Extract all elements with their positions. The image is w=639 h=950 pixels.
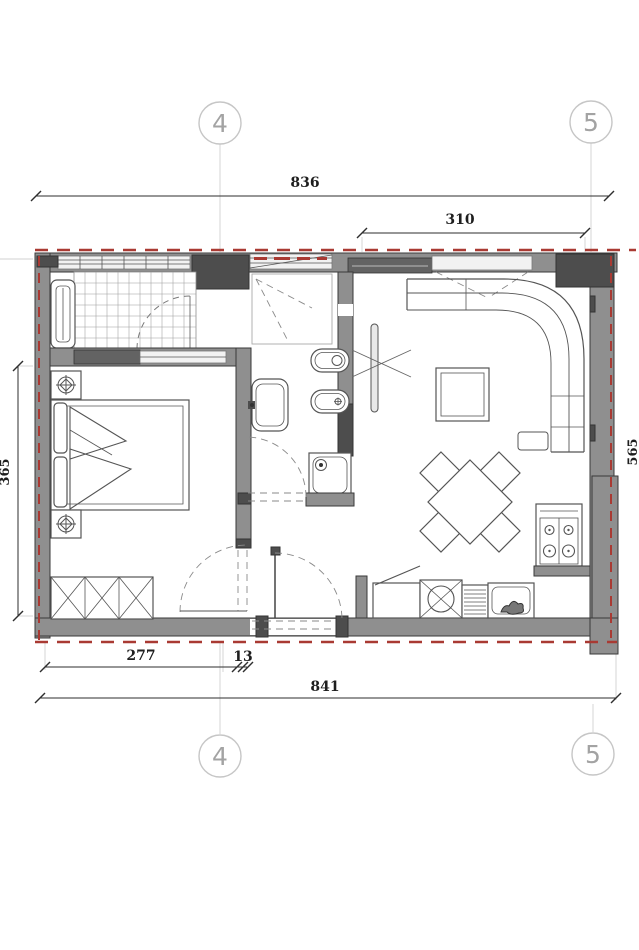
corner-block-top-left — [37, 256, 58, 267]
grid-marker-label: 5 — [583, 108, 599, 137]
balcony-floor — [74, 272, 196, 352]
red-dash-seg — [297, 257, 310, 260]
red-dash-seg — [254, 257, 267, 260]
wall-bedroom-bathroom — [236, 348, 251, 546]
coffee-table — [436, 368, 489, 421]
wall-left — [35, 253, 50, 638]
grid-marker-5-bottom: 5 — [572, 733, 614, 775]
toilet — [311, 349, 349, 372]
headboard-cushion — [54, 403, 67, 453]
wall-mark — [590, 425, 595, 441]
dim-label-841: 841 — [310, 679, 339, 695]
stove — [536, 504, 582, 566]
dim-bottom-left: 277 13 — [40, 648, 253, 672]
counter-cabinet — [373, 583, 420, 618]
door-jamb — [236, 539, 251, 548]
grid-marker-label: 5 — [585, 740, 601, 769]
pilaster-bottom-right — [590, 618, 618, 654]
red-dash-seg — [274, 257, 290, 260]
door-jamb — [336, 616, 348, 637]
dim-right-height-partial: 565 — [626, 438, 639, 465]
double-bed — [51, 400, 189, 510]
grid-marker-label: 4 — [212, 109, 228, 138]
shower-tray — [309, 453, 351, 497]
door-hinge-block — [271, 547, 280, 555]
pilaster-right — [592, 476, 618, 618]
corner-block-top-right — [556, 254, 614, 287]
dim-top-right: 310 — [357, 212, 590, 238]
grid-marker-5-top: 5 — [570, 101, 612, 143]
grid-marker-label: 4 — [212, 742, 228, 771]
grid-marker-4-bottom: 4 — [199, 735, 241, 777]
floor-plan — [35, 250, 636, 654]
door-jamb — [256, 616, 268, 637]
dim-label-565-partial: 565 — [626, 438, 639, 465]
kitchen-wall-stub-right — [534, 566, 590, 576]
wash-basin — [248, 379, 288, 431]
wall-bathroom-south — [306, 493, 354, 506]
dim-label-836: 836 — [290, 175, 319, 191]
headboard-cushion — [54, 457, 67, 507]
column-balcony-right — [192, 255, 249, 289]
bedroom-window-sill — [74, 350, 140, 364]
door-jamb — [238, 493, 251, 504]
wall-niche — [338, 304, 353, 316]
kitchen-wall-stub-left — [356, 576, 367, 618]
dim-label-13: 13 — [233, 649, 252, 665]
red-dash-seg — [317, 257, 327, 260]
dim-bottom-overall: 841 — [35, 679, 621, 703]
dim-left-height: 365 — [0, 361, 23, 621]
bidet — [311, 390, 349, 413]
grid-marker-4-top: 4 — [199, 102, 241, 144]
dim-top-overall: 836 — [31, 175, 614, 201]
dining-set — [420, 452, 520, 552]
dim-label-277: 277 — [126, 648, 155, 664]
wall-mark — [590, 296, 595, 312]
dim-label-365: 365 — [0, 458, 13, 485]
dim-label-310: 310 — [445, 212, 474, 228]
living-window — [432, 256, 532, 270]
shower-area — [252, 274, 332, 344]
floor-plan-drawing: 836 310 365 565 277 13 — [0, 0, 639, 950]
